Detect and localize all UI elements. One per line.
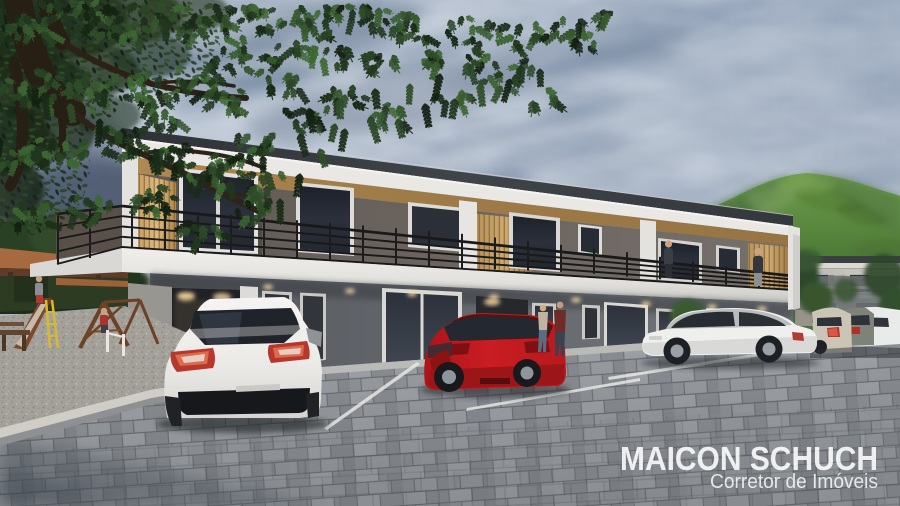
svg-text:Corretor de Imóveis: Corretor de Imóveis [710,471,878,493]
